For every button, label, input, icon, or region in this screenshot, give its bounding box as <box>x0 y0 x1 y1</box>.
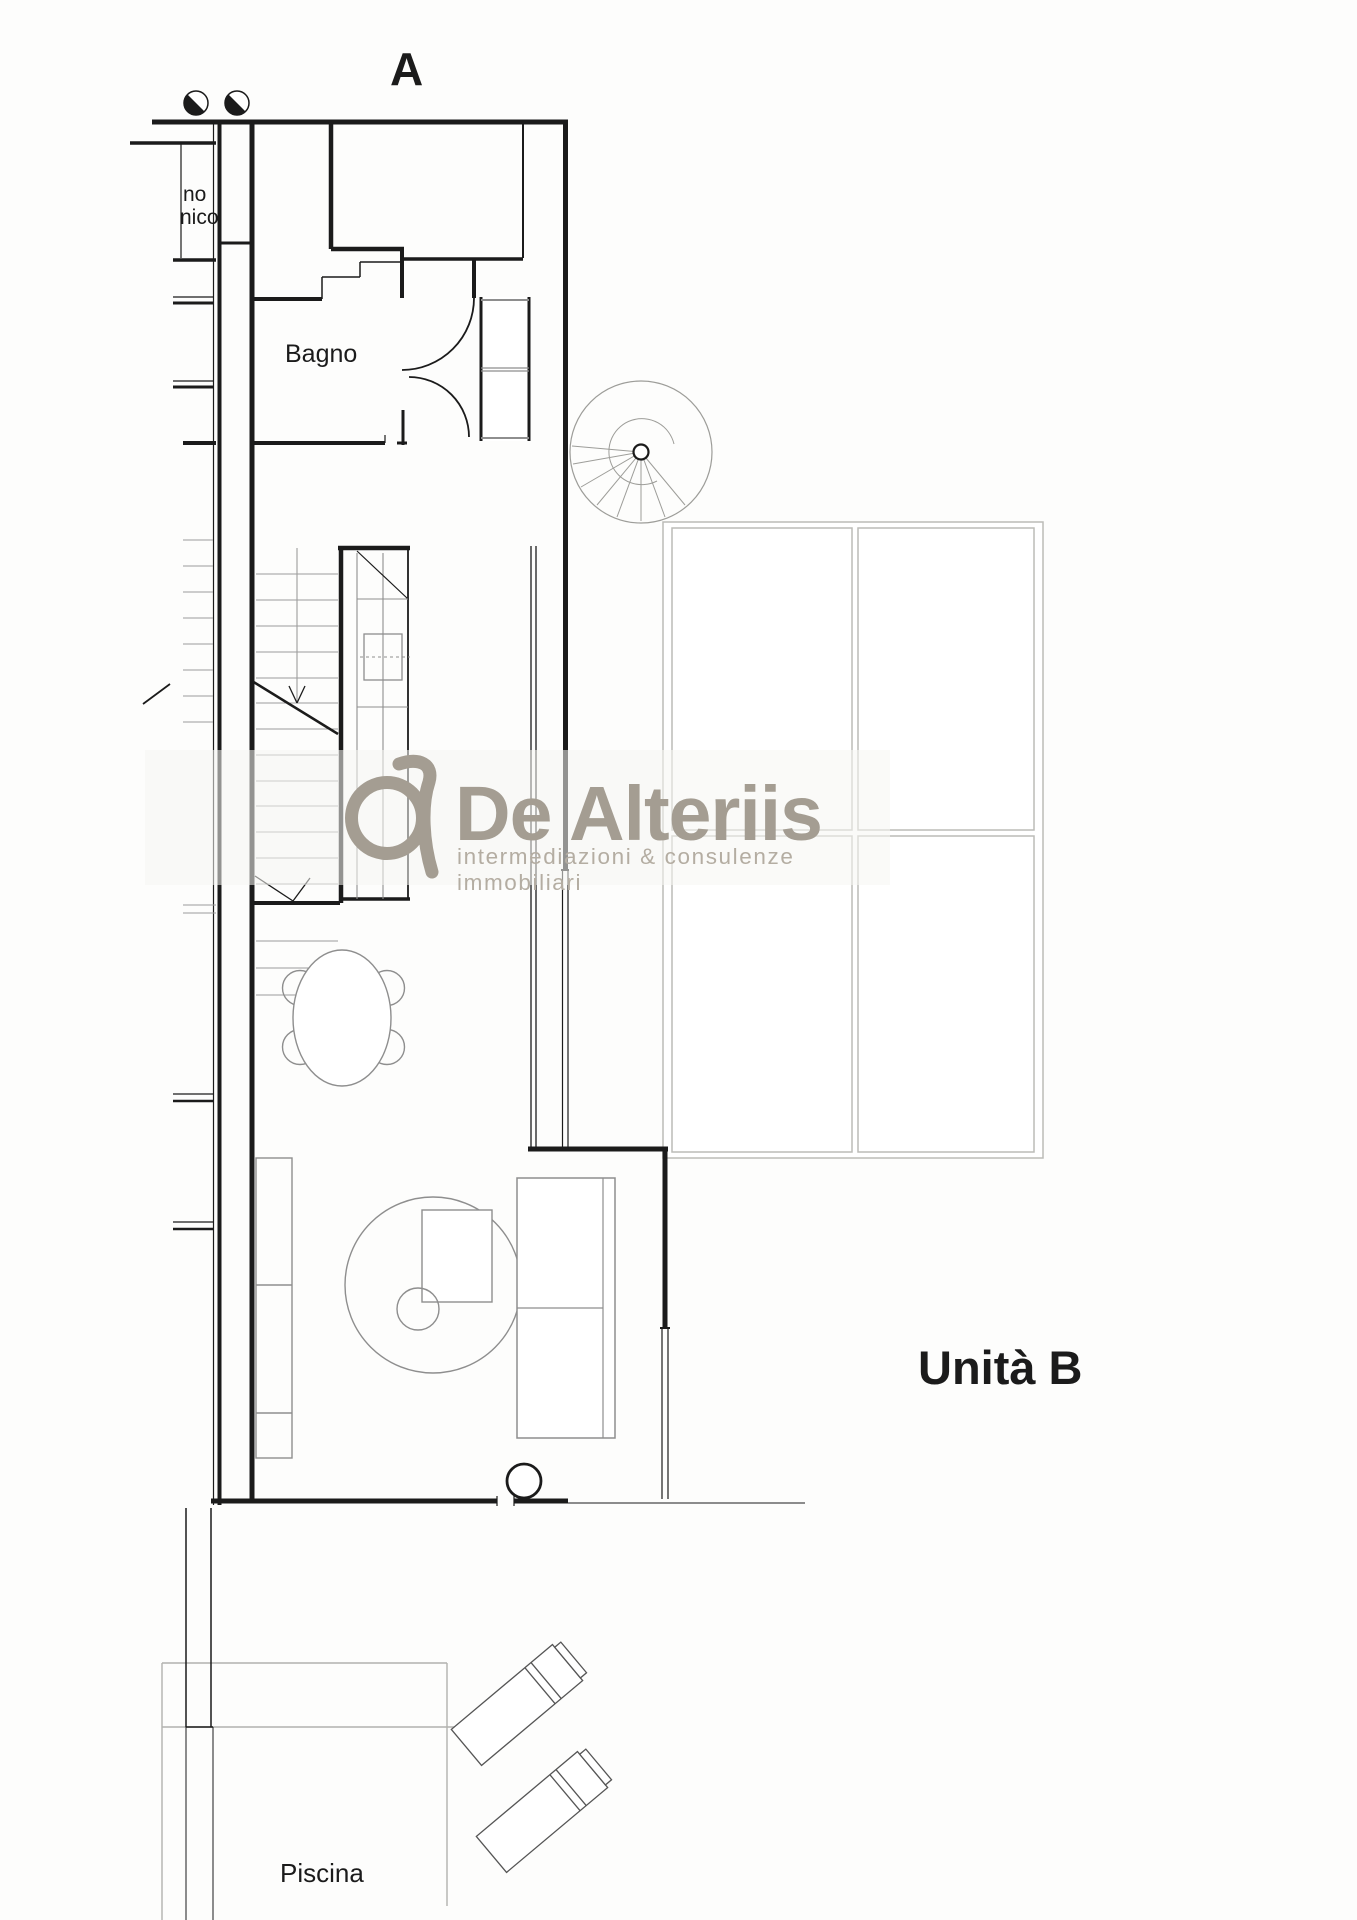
de-alteriis-logo-icon <box>330 748 455 888</box>
watermark: De Alteriis intermediazioni & consulenze… <box>330 748 910 888</box>
pool-label: Piscina <box>280 1860 364 1886</box>
wardrobe-icon <box>481 297 529 441</box>
clipped-room-label-line2: nico <box>180 207 219 228</box>
lounge-chair-icon <box>451 1639 613 1872</box>
column-icon <box>507 1464 541 1498</box>
unit-label: Unità B <box>918 1344 1083 1391</box>
section-label: A <box>390 46 423 92</box>
watermark-tagline: intermediazioni & consulenze immobiliari <box>457 844 910 896</box>
door-swing-icon <box>402 298 474 437</box>
floorplan-drawing <box>0 0 1357 1920</box>
bathroom-label: Bagno <box>285 342 357 367</box>
spiral-staircase-icon <box>570 381 712 523</box>
sofa-left-icon <box>256 1158 292 1458</box>
clipped-room-label-line1: no <box>183 184 206 205</box>
dining-table-icon <box>283 950 405 1086</box>
sofa-icon <box>517 1178 615 1438</box>
floorplan-page: De Alteriis intermediazioni & consulenze… <box>0 0 1357 1920</box>
round-armchair-icon <box>345 1197 521 1373</box>
section-marker-icon <box>184 91 249 115</box>
